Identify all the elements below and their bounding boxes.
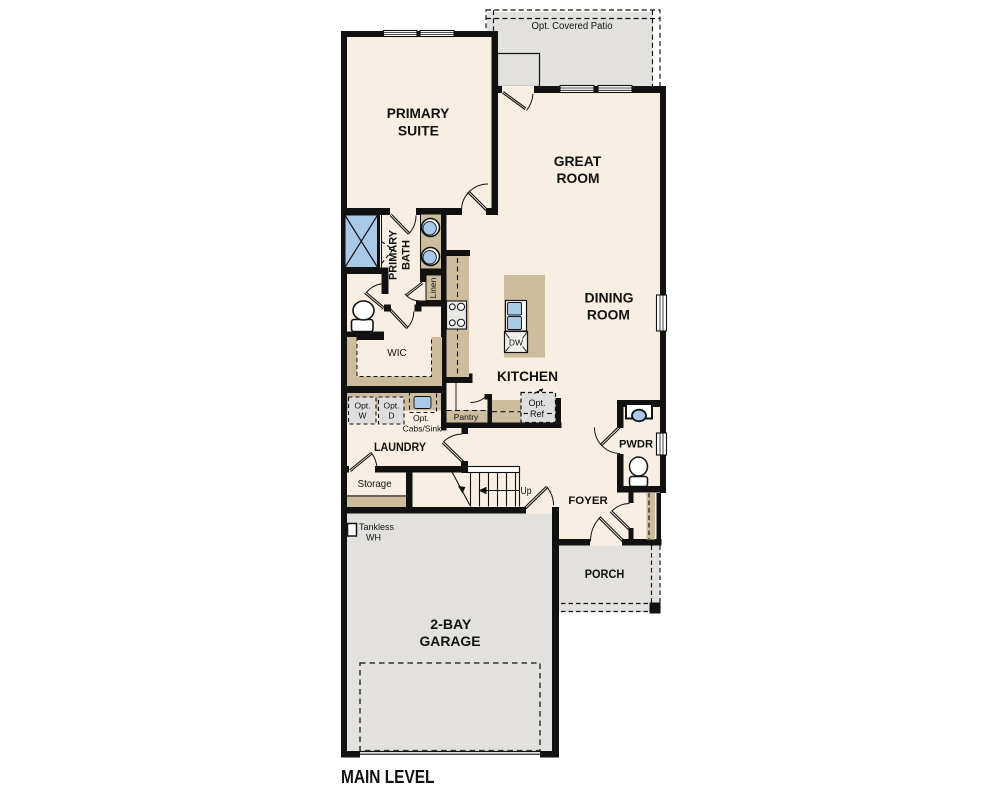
svg-text:GREAT: GREAT [554,154,602,169]
svg-text:ROOM: ROOM [557,171,600,186]
svg-text:Opt.: Opt. [354,401,370,411]
svg-text:Pantry: Pantry [454,412,479,422]
svg-text:KITCHEN: KITCHEN [497,369,558,385]
svg-text:Opt.: Opt. [383,401,399,411]
svg-text:LAUNDRY: LAUNDRY [374,440,426,454]
svg-text:ROOM: ROOM [587,308,630,323]
svg-text:BATH: BATH [401,240,413,270]
svg-text:GARAGE: GARAGE [420,634,481,649]
svg-text:D: D [388,411,394,421]
svg-text:WIC: WIC [387,347,407,359]
svg-text:MAIN LEVEL: MAIN LEVEL [341,767,435,787]
svg-text:Opt.: Opt. [528,398,545,408]
svg-text:2-BAY: 2-BAY [430,617,471,632]
svg-text:W: W [358,411,366,421]
svg-text:Linen: Linen [428,277,438,298]
svg-text:Ref: Ref [530,409,545,419]
svg-text:Tankless: Tankless [359,522,395,532]
svg-text:DINING: DINING [585,291,634,306]
svg-text:SUITE: SUITE [398,124,439,139]
svg-text:Cabs/Sink: Cabs/Sink [403,424,442,434]
svg-text:FOYER: FOYER [568,495,608,507]
svg-text:PRIMARY: PRIMARY [388,229,400,280]
svg-text:Opt.: Opt. [413,413,429,423]
svg-text:PWDR: PWDR [619,439,653,451]
svg-text:Storage: Storage [358,478,392,490]
svg-text:DW: DW [509,338,523,348]
svg-text:PORCH: PORCH [585,569,625,581]
svg-text:Opt. Covered Patio: Opt. Covered Patio [532,21,614,32]
svg-text:PRIMARY: PRIMARY [387,106,450,121]
svg-text:WH: WH [366,533,381,543]
svg-text:Up: Up [521,486,532,497]
